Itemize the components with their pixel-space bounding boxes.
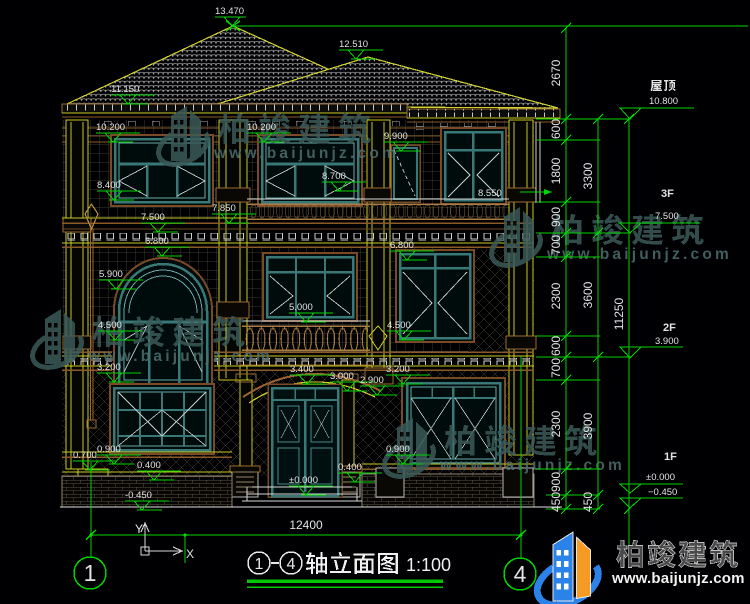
svg-text:7.500: 7.500 — [141, 212, 165, 223]
svg-text:3.900: 3.900 — [655, 336, 679, 347]
svg-text:3.400: 3.400 — [290, 364, 314, 375]
svg-text:±0.000: ±0.000 — [646, 472, 675, 483]
svg-text:700: 700 — [549, 235, 563, 255]
svg-text:5.000: 5.000 — [289, 302, 313, 313]
svg-text:−0.450: −0.450 — [648, 487, 677, 498]
svg-text:2.900: 2.900 — [360, 375, 384, 386]
svg-text:4.500: 4.500 — [387, 320, 411, 331]
svg-text:2300: 2300 — [549, 410, 563, 437]
svg-text:www.baijunjz.com: www.baijunjz.com — [213, 145, 399, 162]
svg-text:450: 450 — [549, 492, 563, 512]
svg-text:7.500: 7.500 — [655, 211, 679, 222]
svg-text:0.400: 0.400 — [137, 460, 161, 471]
svg-text:0.400: 0.400 — [338, 462, 362, 473]
svg-text:8.550: 8.550 — [478, 188, 502, 199]
svg-text:8.400: 8.400 — [97, 180, 121, 191]
svg-text:1F: 1F — [664, 451, 677, 463]
svg-text:4.500: 4.500 — [98, 320, 122, 331]
svg-text:6.800: 6.800 — [390, 240, 414, 251]
svg-text:8.700: 8.700 — [322, 171, 346, 182]
svg-text:11250: 11250 — [612, 297, 626, 330]
svg-text:Y: Y — [135, 522, 143, 536]
svg-text:600: 600 — [549, 119, 563, 139]
svg-text:13.470: 13.470 — [215, 6, 244, 17]
svg-text:1800: 1800 — [549, 157, 563, 184]
svg-text:0.900: 0.900 — [386, 444, 410, 455]
svg-text:2300: 2300 — [549, 282, 563, 309]
svg-text:10.200: 10.200 — [247, 122, 276, 133]
svg-text:900: 900 — [549, 472, 563, 492]
svg-text:10.200: 10.200 — [96, 122, 125, 133]
svg-text:12.510: 12.510 — [339, 39, 368, 50]
svg-text:12400: 12400 — [289, 518, 323, 532]
svg-text:11.150: 11.150 — [111, 84, 139, 95]
svg-text:0.900: 0.900 — [97, 444, 121, 455]
svg-text:2F: 2F — [663, 322, 676, 334]
svg-text:4: 4 — [287, 556, 296, 573]
svg-text:3F: 3F — [661, 188, 674, 200]
svg-text:www.baijunjz.com: www.baijunjz.com — [611, 570, 745, 587]
svg-text:3.000: 3.000 — [330, 371, 354, 382]
svg-text:5.900: 5.900 — [99, 269, 123, 280]
svg-text:450: 450 — [581, 492, 595, 512]
svg-text:±0.000: ±0.000 — [289, 475, 318, 486]
svg-text:4: 4 — [514, 561, 527, 587]
svg-text:www.baijunjz.com: www.baijunjz.com — [546, 246, 732, 263]
svg-text:3300: 3300 — [581, 162, 595, 189]
svg-text:7.850: 7.850 — [212, 203, 236, 214]
svg-text:0.700: 0.700 — [73, 450, 97, 461]
svg-text:3.200: 3.200 — [97, 362, 121, 373]
svg-text:2670: 2670 — [549, 59, 563, 86]
svg-text:1: 1 — [255, 556, 264, 573]
svg-text:3600: 3600 — [581, 281, 595, 308]
svg-text:1: 1 — [84, 560, 97, 586]
svg-text:www.baijunjz.com: www.baijunjz.com — [439, 457, 625, 474]
svg-text:-0.450: -0.450 — [125, 490, 152, 501]
svg-text:10.800: 10.800 — [649, 96, 678, 107]
svg-text:X: X — [186, 547, 194, 561]
svg-text:9.900: 9.900 — [384, 131, 408, 142]
svg-text:1:100: 1:100 — [406, 555, 451, 575]
svg-text:6.800: 6.800 — [145, 236, 169, 247]
svg-text:3900: 3900 — [581, 412, 595, 439]
svg-text:900: 900 — [549, 207, 563, 227]
svg-text:700: 700 — [549, 358, 563, 378]
svg-text:600: 600 — [549, 336, 563, 356]
svg-text:3.200: 3.200 — [386, 364, 410, 375]
